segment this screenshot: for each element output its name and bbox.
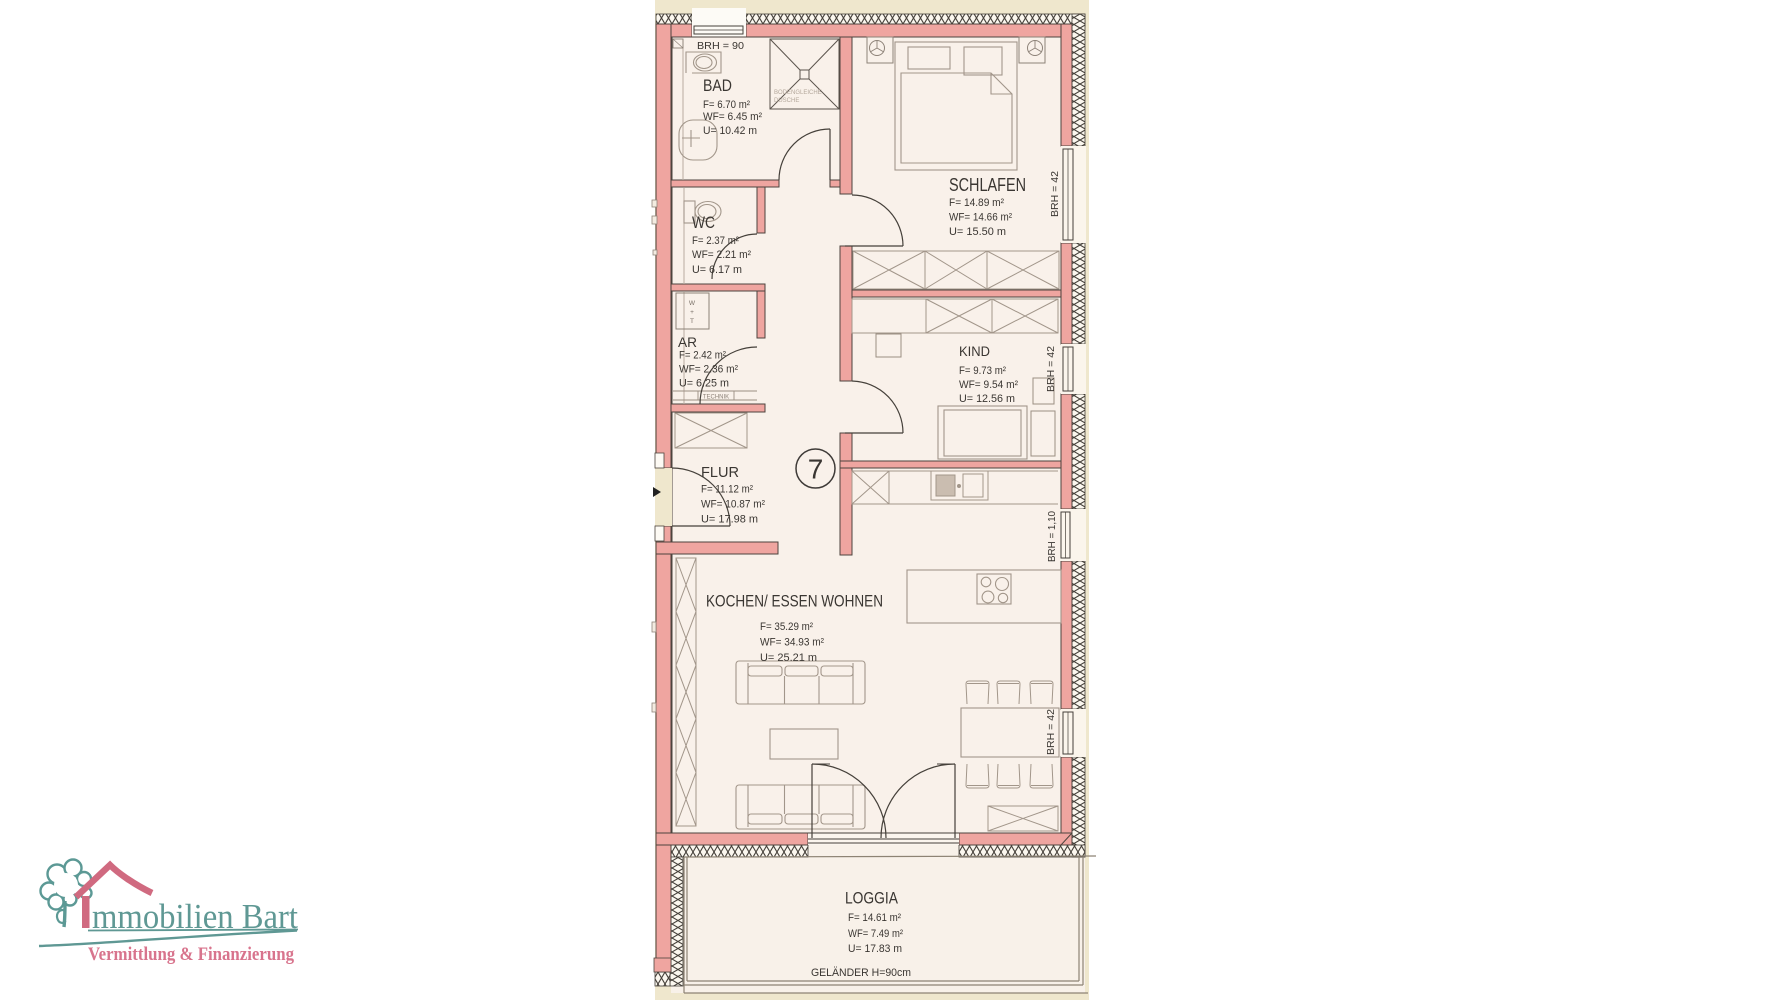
svg-text:BAD: BAD [703, 76, 732, 95]
svg-text:WF= 2.21 m²: WF= 2.21 m² [692, 249, 751, 261]
svg-text:SCHLAFEN: SCHLAFEN [949, 175, 1026, 195]
svg-text:BRH = 90: BRH = 90 [697, 40, 744, 52]
svg-text:U= 10.42 m: U= 10.42 m [703, 125, 757, 137]
svg-text:U= 12.56 m: U= 12.56 m [959, 393, 1015, 405]
svg-text:WF= 9.54 m²: WF= 9.54 m² [959, 379, 1018, 391]
svg-text:U= 6.25 m: U= 6.25 m [679, 378, 729, 390]
svg-text:W: W [689, 300, 696, 307]
svg-text:KOCHEN/ ESSEN WOHNEN: KOCHEN/ ESSEN WOHNEN [706, 593, 883, 611]
svg-text:U= 25.21 m: U= 25.21 m [760, 652, 817, 664]
svg-text:WF= 6.45 m²: WF= 6.45 m² [703, 111, 762, 123]
svg-text:WF= 34.93 m²: WF= 34.93 m² [760, 637, 824, 649]
svg-text:WF= 14.66 m²: WF= 14.66 m² [949, 212, 1012, 224]
svg-text:Vermittlung & Finanzierung: Vermittlung & Finanzierung [88, 944, 294, 965]
svg-text:WF= 2.36 m²: WF= 2.36 m² [679, 364, 738, 376]
svg-text:BRH = 42: BRH = 42 [1050, 171, 1061, 217]
svg-text:BRH = 42: BRH = 42 [1046, 346, 1057, 392]
svg-text:GELÄNDER H=90cm: GELÄNDER H=90cm [811, 967, 911, 979]
svg-text:U= 6.17 m: U= 6.17 m [692, 264, 742, 276]
svg-text:T: T [690, 318, 694, 325]
svg-text:U= 17.98 m: U= 17.98 m [701, 514, 758, 526]
svg-text:AR: AR [678, 334, 697, 350]
svg-text:WF= 7.49 m²: WF= 7.49 m² [848, 928, 903, 940]
svg-text:+: + [690, 309, 694, 316]
svg-text:U= 15.50 m: U= 15.50 m [949, 226, 1006, 238]
svg-text:KIND: KIND [959, 343, 990, 359]
svg-text:U= 17.83 m: U= 17.83 m [848, 943, 902, 955]
svg-text:BRH = 42: BRH = 42 [1046, 709, 1057, 755]
svg-text:F= 11.12 m²: F= 11.12 m² [701, 484, 753, 496]
svg-text:F= 35.29 m²: F= 35.29 m² [760, 621, 813, 633]
svg-text:FLUR: FLUR [701, 465, 739, 481]
svg-text:F= 6.70 m²: F= 6.70 m² [703, 99, 750, 111]
svg-text:LOGGIA: LOGGIA [845, 890, 898, 908]
svg-text:F= 9.73 m²: F= 9.73 m² [959, 365, 1006, 377]
svg-text:F= 2.37 m²: F= 2.37 m² [692, 235, 739, 247]
svg-text:DUSCHE: DUSCHE [774, 98, 799, 104]
svg-text:WC: WC [692, 213, 715, 232]
svg-text:7: 7 [808, 454, 824, 485]
svg-text:WF= 10.87 m²: WF= 10.87 m² [701, 499, 765, 511]
svg-text:F= 14.61 m²: F= 14.61 m² [848, 912, 901, 924]
svg-text:BODENGLEICHE: BODENGLEICHE [774, 90, 822, 96]
svg-text:F= 14.89 m²: F= 14.89 m² [949, 197, 1004, 209]
svg-text:TECHNIK: TECHNIK [703, 395, 729, 401]
svg-text:F= 2.42 m²: F= 2.42 m² [679, 350, 726, 362]
svg-text:BRH = 1,10: BRH = 1,10 [1047, 511, 1058, 562]
